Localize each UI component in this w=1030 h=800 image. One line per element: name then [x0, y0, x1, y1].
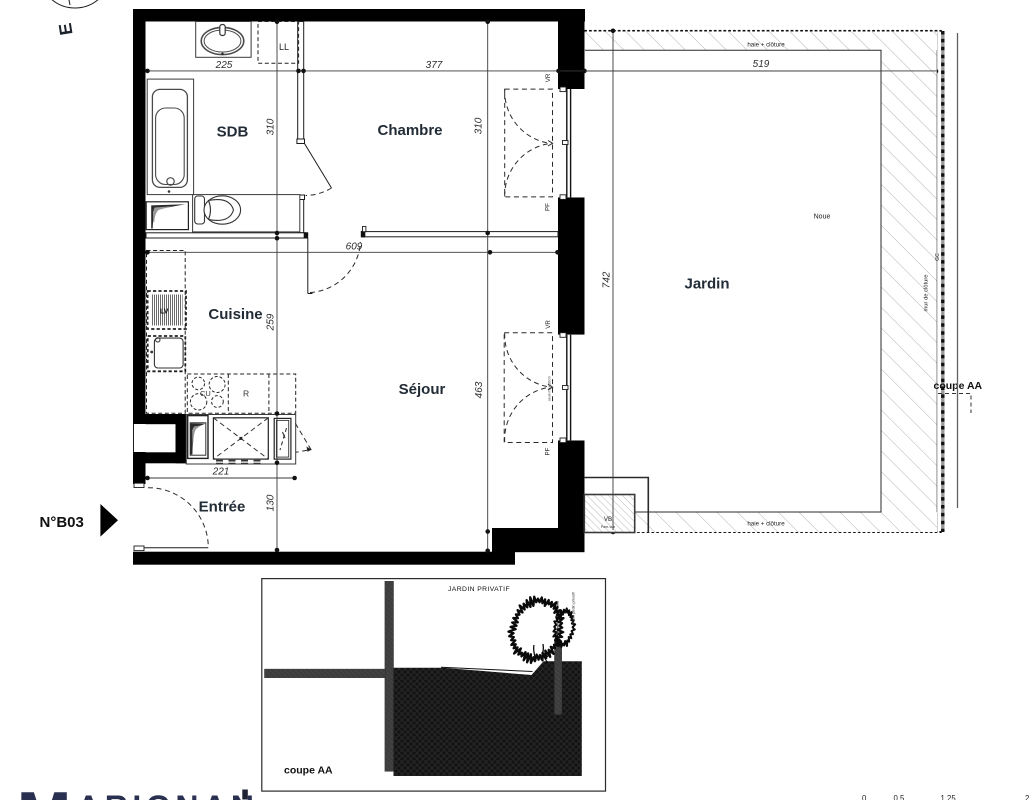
svg-text:Pare-vue: Pare-vue	[601, 525, 616, 529]
svg-text:225: 225	[215, 60, 233, 71]
svg-text:VB: VB	[604, 516, 612, 523]
svg-text:377: 377	[426, 60, 443, 71]
svg-text:mur de clôture: mur de clôture	[924, 274, 930, 311]
svg-text:Jardin: Jardin	[684, 276, 729, 293]
svg-text:0.5: 0.5	[894, 794, 906, 800]
svg-text:coupe AA: coupe AA	[284, 765, 333, 777]
svg-text:609: 609	[346, 242, 363, 253]
svg-text:N°B03: N°B03	[40, 514, 84, 531]
svg-text:221: 221	[212, 467, 230, 478]
svg-text:130: 130	[266, 494, 277, 511]
svg-text:Noue: Noue	[814, 214, 831, 221]
svg-text:Cuisine: Cuisine	[208, 306, 262, 323]
svg-text:M: M	[17, 778, 71, 800]
svg-text:seuil max 20cm: seuil max 20cm	[548, 376, 552, 401]
svg-text:Chambre: Chambre	[377, 122, 442, 139]
svg-text:259: 259	[266, 313, 277, 331]
svg-text:JARDIN PRIVATIF: JARDIN PRIVATIF	[448, 586, 510, 593]
svg-text:519: 519	[753, 59, 770, 70]
svg-text:limite jardin privatif: limite jardin privatif	[572, 591, 576, 623]
svg-text:GC: GC	[935, 253, 941, 261]
svg-text:haie + clôture: haie + clôture	[747, 42, 785, 49]
svg-text:310: 310	[474, 117, 485, 134]
svg-text:LL: LL	[279, 42, 289, 52]
svg-text:Séjour: Séjour	[399, 381, 446, 398]
svg-text:CU: CU	[200, 389, 211, 398]
svg-text:VR: VR	[545, 320, 552, 329]
svg-text:2: 2	[1025, 794, 1029, 800]
svg-text:ARIGNAN: ARIGNAN	[77, 789, 259, 800]
svg-text:haie + clôture: haie + clôture	[747, 521, 785, 528]
svg-text:SDB: SDB	[217, 124, 249, 141]
svg-text:VR: VR	[545, 73, 552, 82]
svg-text:R: R	[243, 389, 249, 399]
svg-text:Entrée: Entrée	[199, 499, 246, 516]
svg-text:742: 742	[602, 271, 613, 288]
svg-text:PF: PF	[545, 447, 552, 455]
svg-text:LV: LV	[160, 309, 169, 316]
svg-text:PF: PF	[545, 203, 552, 211]
svg-text:1.25: 1.25	[941, 794, 957, 800]
svg-text:310: 310	[266, 118, 277, 135]
svg-text:463: 463	[474, 381, 485, 398]
svg-text:0: 0	[862, 794, 867, 800]
